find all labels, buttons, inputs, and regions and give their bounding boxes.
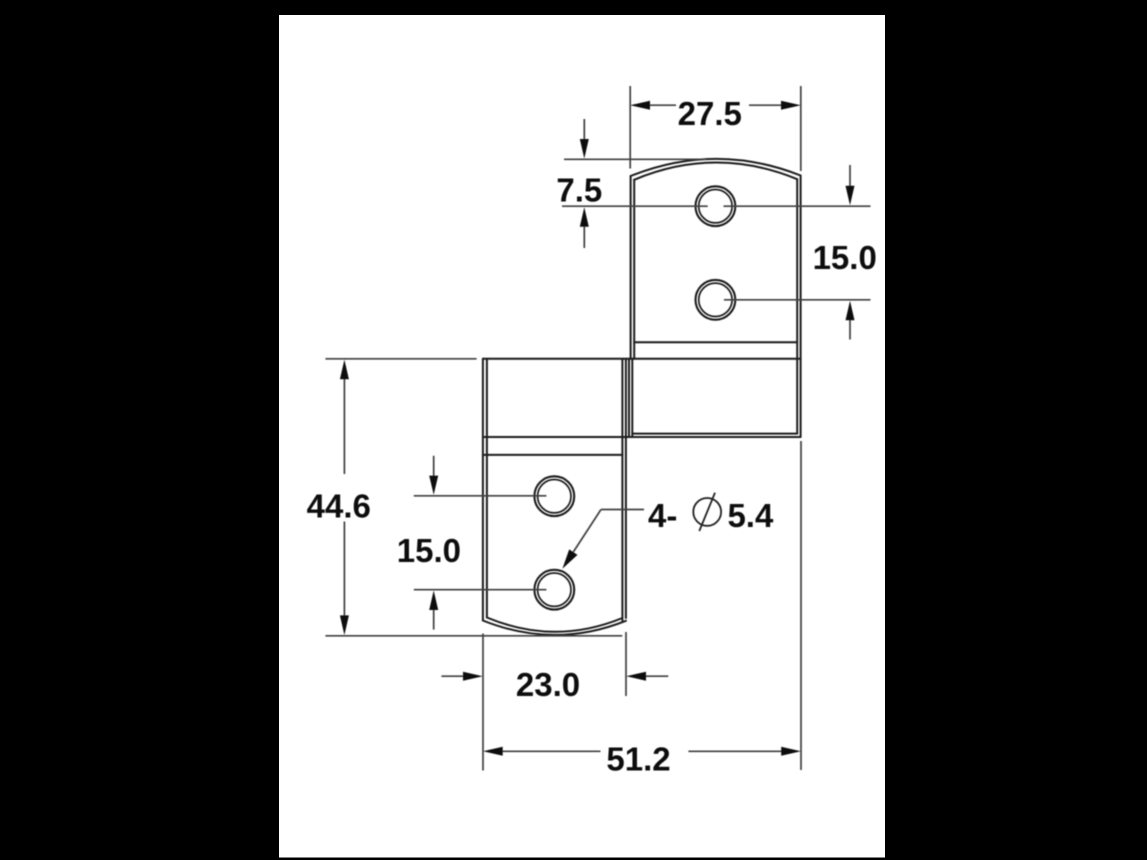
svg-text:4-: 4- [648, 497, 677, 534]
svg-text:15.0: 15.0 [397, 532, 461, 569]
svg-text:51.2: 51.2 [606, 741, 670, 778]
svg-text:23.0: 23.0 [516, 666, 580, 703]
svg-text:7.5: 7.5 [556, 172, 602, 209]
svg-text:15.0: 15.0 [813, 239, 877, 276]
svg-text:27.5: 27.5 [678, 95, 742, 132]
svg-text:44.6: 44.6 [307, 487, 371, 524]
svg-text:5.4: 5.4 [727, 497, 774, 534]
